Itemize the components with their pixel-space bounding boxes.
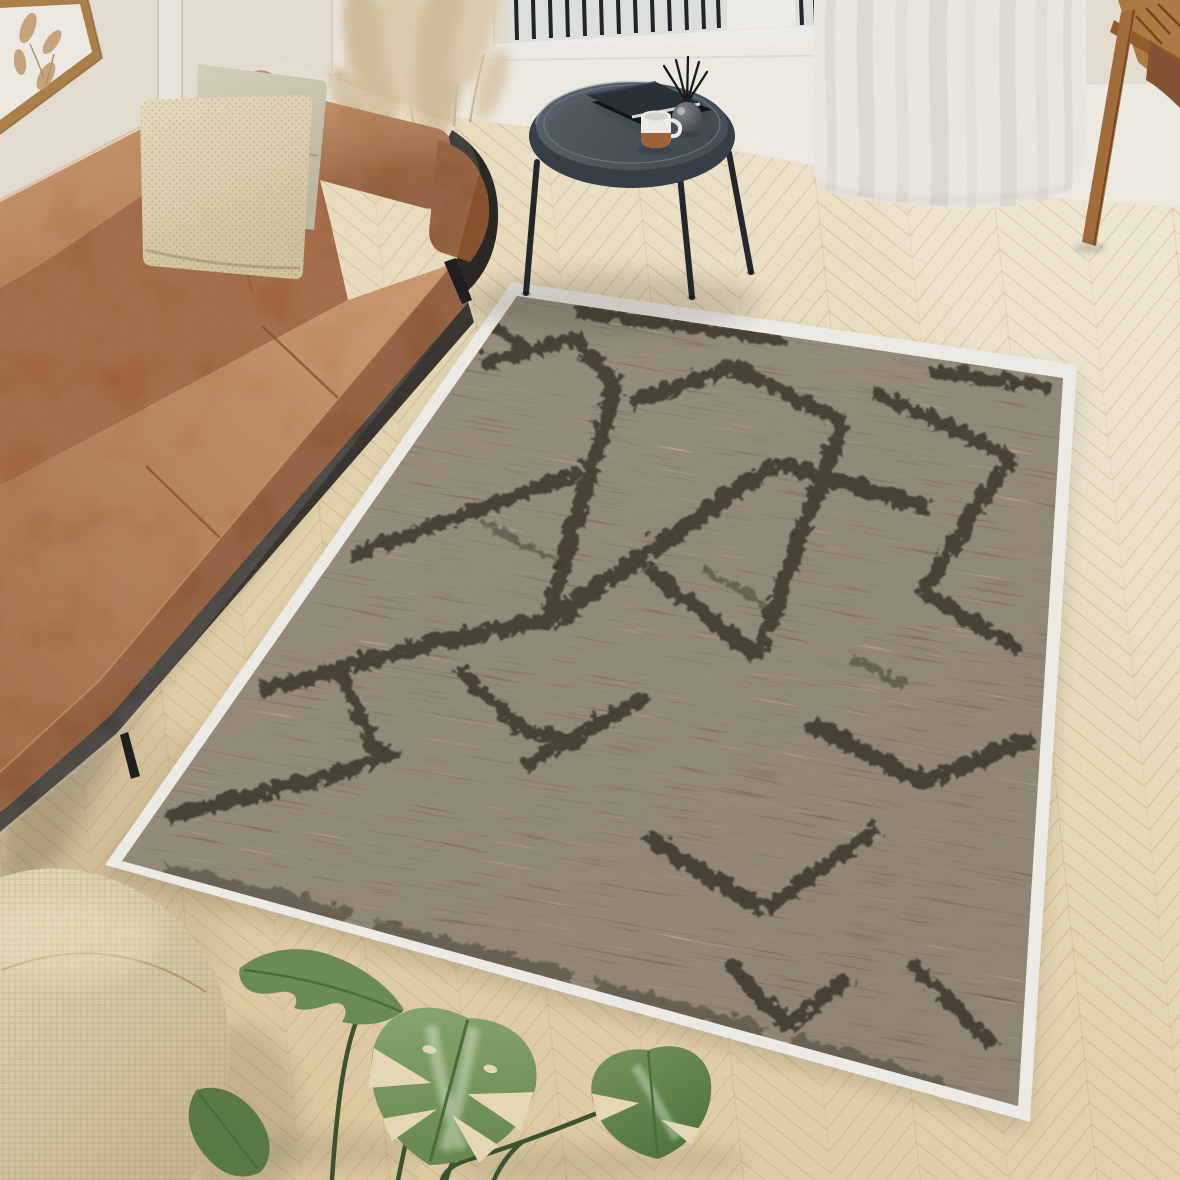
living-room-photo	[0, 0, 1180, 1180]
photo-grain	[0, 0, 1180, 1180]
scene-canvas	[0, 0, 1180, 1180]
